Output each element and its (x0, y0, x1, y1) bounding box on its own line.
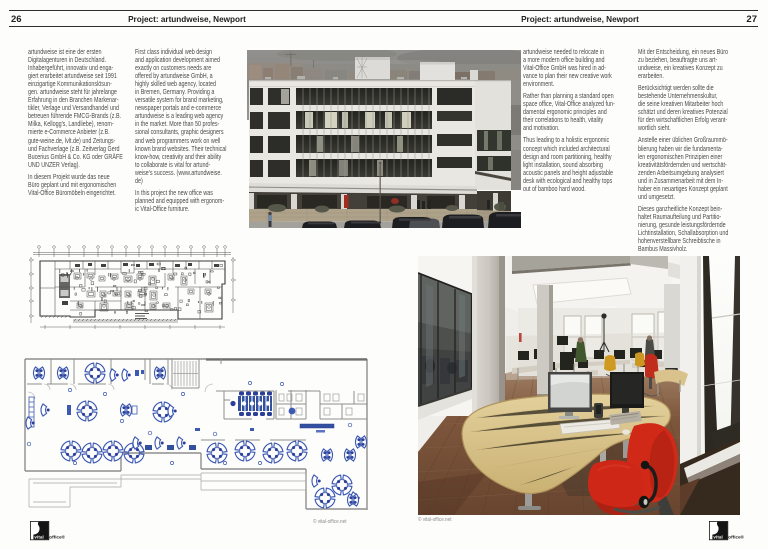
svg-text:office®: office® (49, 535, 65, 540)
svg-text:vital: vital (34, 535, 44, 540)
svg-text:vital: vital (713, 535, 723, 540)
svg-text:office®: office® (728, 535, 744, 540)
